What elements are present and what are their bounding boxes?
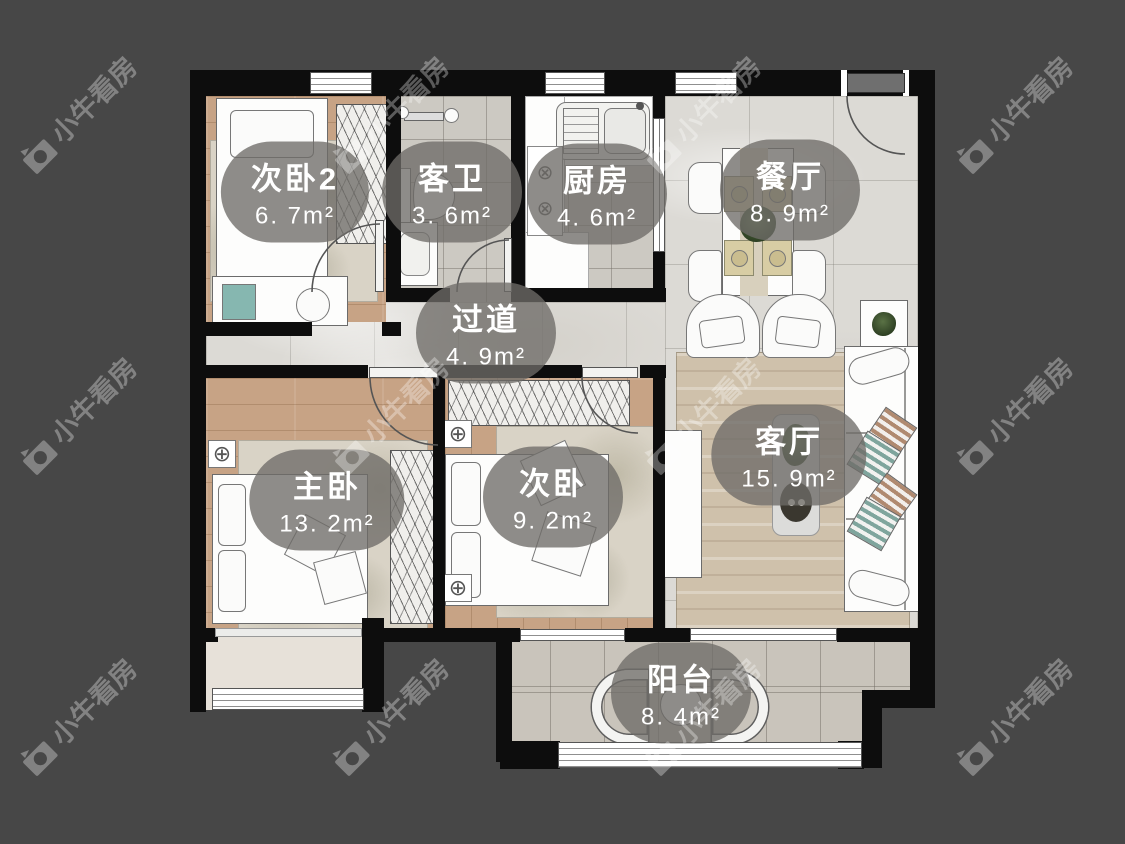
bay-window-sill xyxy=(215,628,362,637)
bedroom-door-leaf xyxy=(582,367,638,378)
watermark: 小牛看房 xyxy=(12,649,145,782)
watermark-text: 小牛看房 xyxy=(41,348,145,452)
bay-window xyxy=(212,688,364,710)
desk-tablet xyxy=(222,284,256,320)
window-dining xyxy=(675,72,737,94)
bedroom-pillow xyxy=(451,462,481,526)
wall-bedroom2-bottom xyxy=(190,322,312,336)
ceiling-light-glyph: ⊕ xyxy=(213,443,231,465)
watermark: 小牛看房 xyxy=(12,47,145,180)
camera-icon xyxy=(950,732,997,779)
wall-right xyxy=(918,70,935,632)
window-bedroom xyxy=(520,629,625,641)
window-kitchen xyxy=(545,72,605,94)
room-area: 4. 6m² xyxy=(557,205,637,233)
ceiling-light-icon: ⊕ xyxy=(444,420,472,448)
room-name: 过道 xyxy=(446,295,526,340)
window-bedroom2 xyxy=(310,72,372,94)
room-name: 餐厅 xyxy=(750,152,830,197)
watermark: 小牛看房 xyxy=(12,348,145,481)
room-name: 阳台 xyxy=(641,655,721,700)
ceiling-light-icon: ⊕ xyxy=(208,440,236,468)
watermark-text: 小牛看房 xyxy=(41,649,145,753)
wall-bottom-d xyxy=(837,628,935,642)
wall-bedroom2-bottom-b xyxy=(382,322,401,336)
room-area: 15. 9m² xyxy=(741,466,836,494)
entry-door-leaf xyxy=(847,73,905,93)
room-area: 8. 9m² xyxy=(750,201,830,229)
room-name: 次卧 xyxy=(513,459,593,504)
room-name: 主卧 xyxy=(279,462,374,507)
camera-icon xyxy=(14,431,61,478)
room-label-bathroom: 客卫 3. 6m² xyxy=(382,142,522,243)
room-name: 客卫 xyxy=(412,154,492,199)
room-label-master-bedroom: 主卧 13. 2m² xyxy=(249,450,404,551)
placemat xyxy=(762,240,792,276)
room-area: 3. 6m² xyxy=(412,203,492,231)
room-label-bedroom2: 次卧2 6. 7m² xyxy=(221,142,369,243)
watermark: 小牛看房 xyxy=(948,649,1081,782)
room-label-kitchen: 厨房 4. 6m² xyxy=(527,144,667,245)
watermark: 小牛看房 xyxy=(948,348,1081,481)
room-label-living: 客厅 15. 9m² xyxy=(711,405,866,506)
ceiling-light-glyph: ⊕ xyxy=(449,577,467,599)
dining-chair xyxy=(688,162,722,214)
camera-icon xyxy=(950,431,997,478)
room-area: 13. 2m² xyxy=(279,511,374,539)
towel-bar xyxy=(404,112,444,121)
wall-hall-bottom-a xyxy=(190,365,368,378)
room-area: 8. 4m² xyxy=(641,704,721,732)
room-label-balcony: 阳台 8. 4m² xyxy=(611,643,751,744)
ceiling-light-glyph: ⊕ xyxy=(449,423,467,445)
bedroom-wardrobe xyxy=(448,380,630,426)
wall-bottom-a xyxy=(190,628,218,642)
sofa-back-line xyxy=(904,348,906,610)
placemat xyxy=(724,240,754,276)
watermark-text: 小牛看房 xyxy=(41,47,145,151)
wall-master-bedroom-divider xyxy=(433,365,445,632)
room-label-hallway: 过道 4. 9m² xyxy=(416,283,556,384)
room-label-dining: 餐厅 8. 9m² xyxy=(720,140,860,241)
room-area: 6. 7m² xyxy=(251,203,339,231)
master-door-leaf xyxy=(369,367,438,378)
wall-left xyxy=(190,70,206,632)
wall-bay-left xyxy=(190,632,206,712)
armchair-pillow xyxy=(774,315,821,348)
ceiling-light-icon: ⊕ xyxy=(444,574,472,602)
kitchen-faucet-dot xyxy=(636,102,644,110)
watermark: 小牛看房 xyxy=(948,47,1081,180)
wall-balcony-right-lower xyxy=(862,706,882,768)
camera-icon xyxy=(326,732,373,779)
bedroom2-door-leaf xyxy=(375,220,384,292)
room-area: 4. 9m² xyxy=(446,344,526,372)
camera-icon xyxy=(14,130,61,177)
camera-icon xyxy=(14,732,61,779)
wall-bedroom-living-divider xyxy=(653,365,665,632)
floor-plan: ⊗ ⊗ ⊕ ⊕ ⊕ xyxy=(0,0,1125,844)
camera-icon xyxy=(950,130,997,177)
desk-chair xyxy=(296,288,330,322)
room-name: 厨房 xyxy=(557,156,637,201)
wall-bottom-c xyxy=(625,628,690,642)
faucet-knob-2 xyxy=(444,108,459,123)
room-name: 客厅 xyxy=(741,417,836,462)
wall-balcony-bottom-left xyxy=(500,741,560,769)
watermark-text: 小牛看房 xyxy=(977,47,1081,151)
room-label-bedroom: 次卧 9. 2m² xyxy=(483,447,623,548)
tv-console xyxy=(662,430,702,578)
balcony-sliding-door xyxy=(690,628,837,641)
master-pillow xyxy=(218,484,246,546)
room-area: 9. 2m² xyxy=(513,508,593,536)
watermark-text: 小牛看房 xyxy=(977,649,1081,753)
master-pillow xyxy=(218,550,246,612)
wall-bottom-b xyxy=(362,628,520,642)
room-name: 次卧2 xyxy=(251,154,339,199)
watermark-text: 小牛看房 xyxy=(977,348,1081,452)
balcony-railing xyxy=(558,742,862,768)
